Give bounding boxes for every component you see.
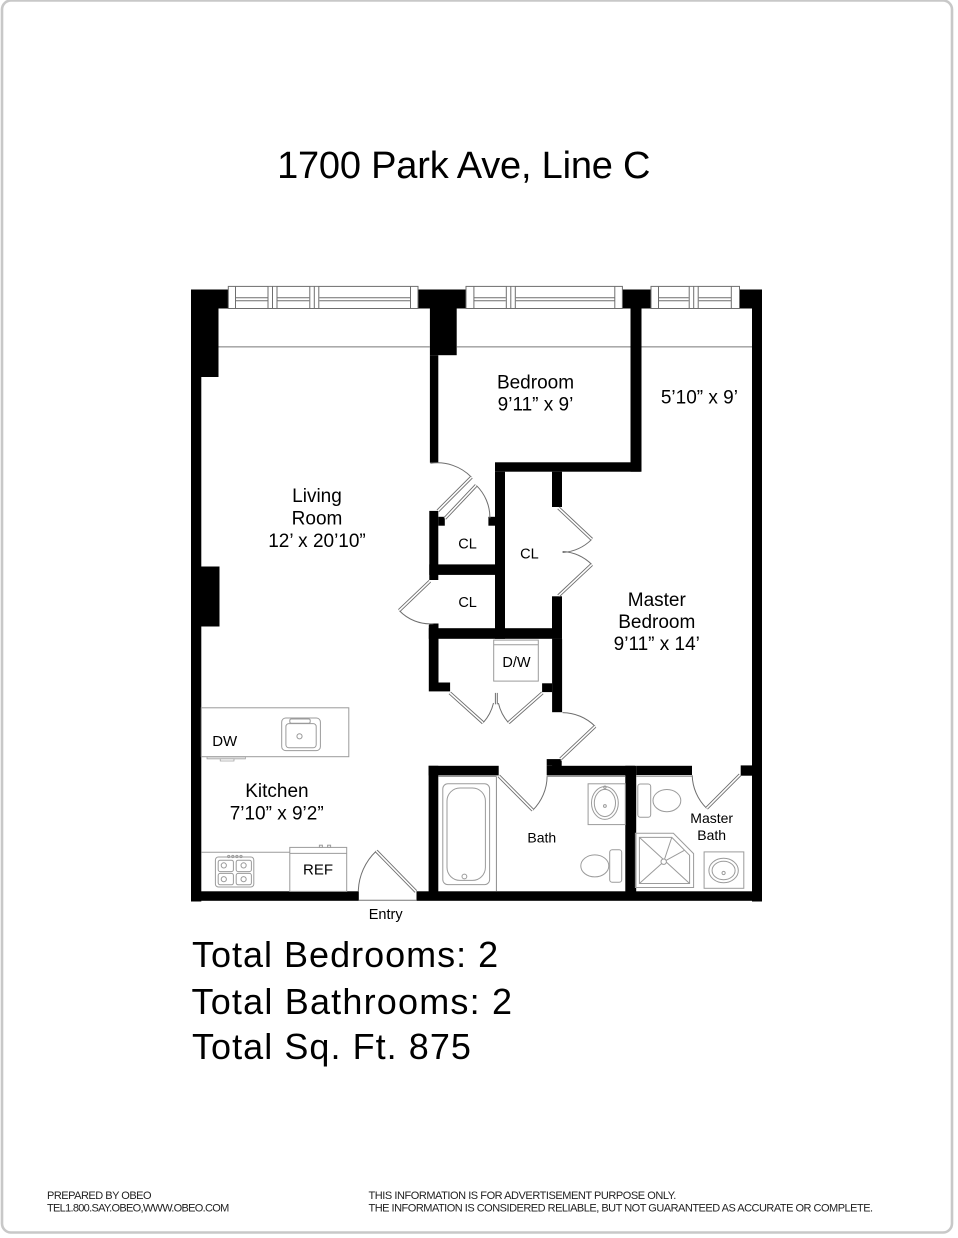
svg-text:Bedroom: Bedroom	[497, 373, 574, 394]
svg-text:CL: CL	[520, 546, 539, 562]
svg-text:CL: CL	[458, 536, 477, 552]
svg-text:12’ x 20’10”: 12’ x 20’10”	[268, 531, 366, 552]
svg-text:Total Bathrooms: 2: Total Bathrooms: 2	[192, 981, 514, 1022]
svg-text:Master: Master	[690, 810, 733, 826]
svg-text:Total Bedrooms: 2: Total Bedrooms: 2	[192, 934, 499, 975]
svg-text:Entry: Entry	[369, 907, 404, 923]
svg-text:D/W: D/W	[502, 655, 531, 671]
svg-text:Bath: Bath	[527, 830, 556, 846]
svg-text:Living: Living	[292, 486, 342, 507]
svg-text:Kitchen: Kitchen	[245, 781, 308, 802]
svg-text:REF: REF	[303, 862, 333, 879]
svg-text:1700 Park Ave, Line C: 1700 Park Ave, Line C	[277, 145, 650, 187]
svg-text:Room: Room	[292, 508, 343, 529]
svg-text:5’10” x 9’: 5’10” x 9’	[661, 388, 738, 409]
svg-text:TEL1.800.SAY.OBEO,WWW.OBEO.COM: TEL1.800.SAY.OBEO,WWW.OBEO.COM	[47, 1203, 229, 1215]
svg-text:CL: CL	[458, 595, 477, 611]
svg-text:THIS INFORMATION IS FOR ADVERT: THIS INFORMATION IS FOR ADVERTISEMENT PU…	[369, 1190, 677, 1202]
svg-text:Master: Master	[628, 590, 687, 611]
svg-text:9’11” x 14’: 9’11” x 14’	[614, 634, 700, 655]
svg-text:9’11” x 9’: 9’11” x 9’	[498, 394, 574, 415]
svg-text:PREPARED BY OBEO: PREPARED BY OBEO	[47, 1190, 152, 1202]
svg-text:THE INFORMATION IS CONSIDERED: THE INFORMATION IS CONSIDERED RELIABLE, …	[369, 1203, 874, 1215]
svg-text:DW: DW	[212, 733, 238, 750]
svg-text:Bath: Bath	[697, 827, 726, 843]
svg-text:Bedroom: Bedroom	[618, 612, 695, 633]
svg-text:Total Sq. Ft. 875: Total Sq. Ft. 875	[192, 1026, 472, 1067]
svg-text:7’10” x 9’2”: 7’10” x 9’2”	[230, 804, 324, 825]
